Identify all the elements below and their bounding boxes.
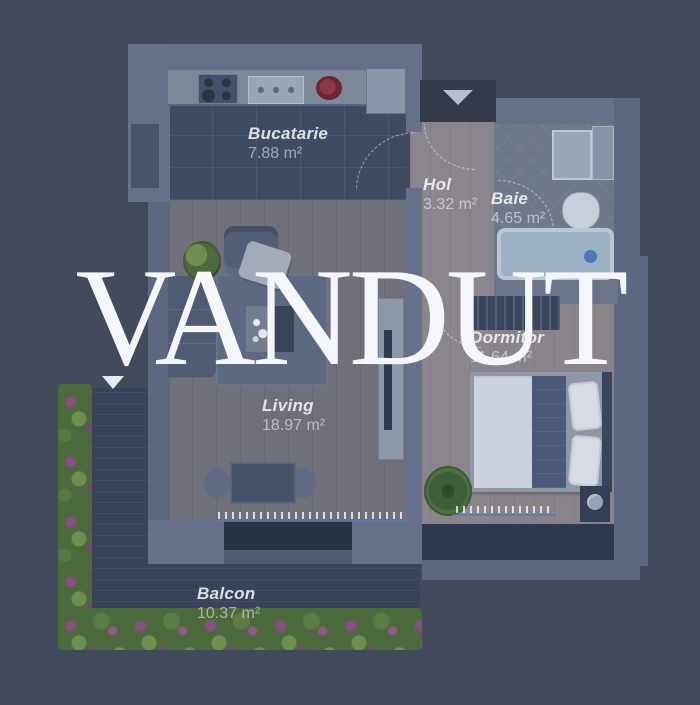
- room-area: 18.97 m²: [262, 416, 325, 435]
- room-name: Balcon: [197, 584, 260, 604]
- room-label-living: Living 18.97 m²: [262, 396, 325, 435]
- bed-pillow-bottom: [568, 435, 602, 487]
- room-label-hol: Hol 3.32 m²: [423, 175, 477, 214]
- balcony-door-sill: [224, 550, 352, 564]
- living-window-line: [214, 520, 410, 522]
- shower-icon: [552, 130, 592, 180]
- sold-watermark-text: VANDUT: [0, 248, 700, 388]
- room-name: Baie: [491, 189, 545, 209]
- wall-left-cabinet: [131, 124, 159, 188]
- bedroom-window-band: [422, 524, 614, 560]
- room-name: Living: [262, 396, 325, 416]
- dining-chair-left: [204, 468, 230, 498]
- sink-icon: [248, 76, 304, 104]
- room-label-balcon: Balcon 10.37 m²: [197, 584, 260, 623]
- wall-balcony-right-block: [352, 520, 422, 564]
- sold-apartment-floorplan: Bucatarie 7.88 m² Hol 3.32 m² Baie 4.65 …: [0, 0, 700, 705]
- wall-balcony-left-block: [148, 520, 224, 564]
- room-area: 10.37 m²: [197, 604, 260, 623]
- room-name: Hol: [423, 175, 477, 195]
- room-area: 4.65 m²: [491, 209, 545, 228]
- toilet-icon: [562, 192, 600, 230]
- wall-bathroom-top: [494, 98, 618, 124]
- balcony-door: [224, 520, 352, 550]
- kitchen-cabinet: [366, 68, 406, 114]
- wall-bottom-bedroom: [422, 560, 640, 580]
- red-plant-icon: [316, 76, 342, 100]
- room-label-baie: Baie 4.65 m²: [491, 189, 545, 228]
- room-area: 3.32 m²: [423, 195, 477, 214]
- room-label-bucatarie: Bucatarie 7.88 m²: [248, 124, 328, 163]
- entrance-arrow-icon: [443, 90, 473, 105]
- bedroom-window-radiator: [456, 506, 552, 513]
- dining-table: [230, 462, 296, 504]
- room-name: Bucatarie: [248, 124, 328, 144]
- living-window-radiator: [218, 512, 406, 519]
- bedroom-window-line: [452, 514, 556, 516]
- room-area: 7.88 m²: [248, 144, 328, 163]
- stove-icon: [198, 74, 238, 104]
- wall-right-upper: [614, 98, 640, 258]
- lamp-icon: [587, 494, 603, 510]
- washing-machine-icon: [592, 126, 614, 180]
